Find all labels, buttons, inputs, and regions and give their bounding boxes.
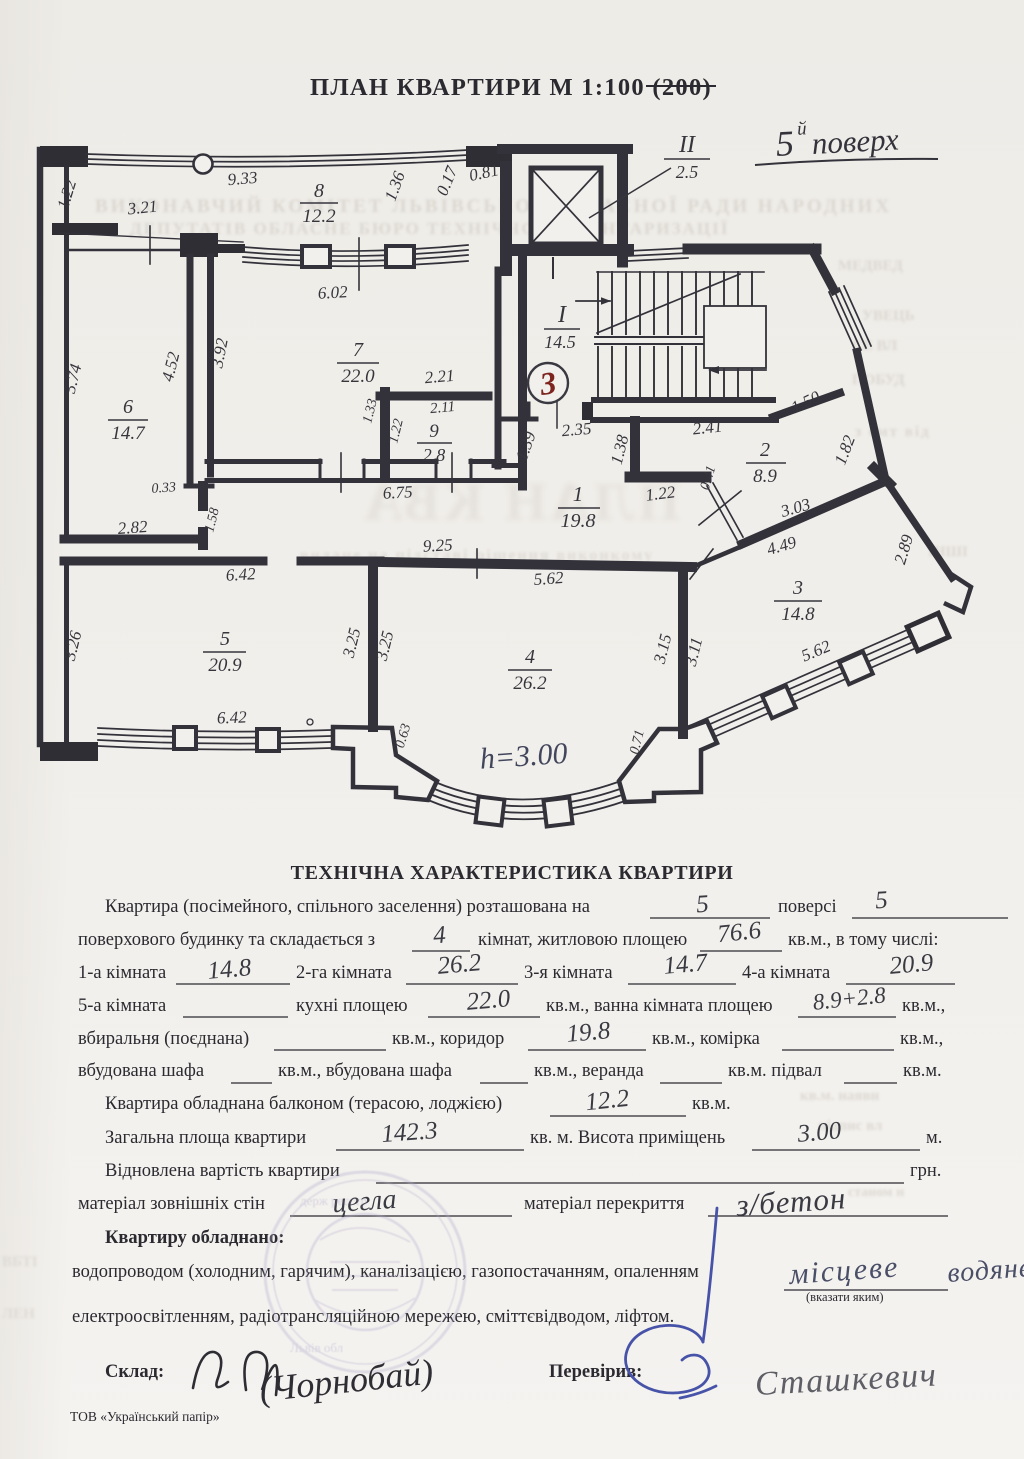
- svg-text:142.3: 142.3: [380, 1117, 438, 1148]
- svg-text:76.6: 76.6: [716, 917, 763, 948]
- svg-text:2-га кімната: 2-га кімната: [296, 963, 392, 983]
- svg-text:26.2: 26.2: [513, 673, 547, 694]
- svg-text:h=3.00: h=3.00: [479, 737, 569, 776]
- svg-text:поверсі: поверсі: [778, 897, 837, 917]
- svg-text:м.: м.: [926, 1128, 942, 1148]
- svg-text:кв.м., коридор: кв.м., коридор: [392, 1029, 504, 1049]
- svg-text:кв.м.,: кв.м.,: [902, 996, 945, 1016]
- svg-text:кв.м., вбудована шафа: кв.м., вбудована шафа: [278, 1061, 452, 1081]
- svg-text:8: 8: [314, 180, 324, 202]
- svg-text:Квартира (посімейного, спільно: Квартира (посімейного, спільного заселен…: [105, 897, 590, 917]
- svg-text:водяне: водяне: [946, 1252, 1024, 1289]
- svg-text:кв.м., комірка: кв.м., комірка: [652, 1029, 760, 1049]
- svg-text:22.0: 22.0: [341, 366, 375, 387]
- svg-text:ВБТІ: ВБТІ: [2, 1254, 38, 1270]
- svg-text:5-а кімната: 5-а кімната: [78, 996, 166, 1016]
- svg-text:6.02: 6.02: [317, 282, 348, 303]
- svg-text:8.9: 8.9: [753, 466, 777, 487]
- svg-text:2.35: 2.35: [561, 419, 592, 441]
- svg-text:22.0: 22.0: [465, 985, 511, 1016]
- svg-text:12.2: 12.2: [584, 1085, 630, 1116]
- svg-text:3.00: 3.00: [795, 1117, 842, 1148]
- svg-text:3-я кімната: 3-я кімната: [524, 963, 613, 983]
- svg-text:ВИКОНАВЧИЙ КОМІТЕТ ЛЬВІВСЬКОЇ: ВИКОНАВЧИЙ КОМІТЕТ ЛЬВІВСЬКОЇ ОБЛАСНОЇ Р…: [95, 195, 892, 217]
- svg-text:2.82: 2.82: [117, 517, 149, 538]
- svg-text:МЕДВЕД: МЕДВЕД: [838, 258, 903, 274]
- svg-text:водопроводом (холодним, гарячи: водопроводом (холодним, гарячим), каналі…: [72, 1262, 699, 1282]
- svg-text:2.21: 2.21: [424, 366, 455, 388]
- svg-text:1-а кімната: 1-а кімната: [78, 963, 166, 983]
- svg-text:II: II: [678, 132, 696, 158]
- svg-text:2: 2: [760, 439, 770, 461]
- svg-text:кв.м., веранда: кв.м., веранда: [534, 1061, 644, 1081]
- svg-text:кв.м.,: кв.м.,: [900, 1029, 943, 1049]
- svg-text:ТЕХНІЧНА ХАРАКТЕРИСТИКА КВАР: ТЕХНІЧНА ХАРАКТЕРИСТИКА КВАРТИРИ: [291, 862, 734, 884]
- svg-text:6: 6: [123, 396, 133, 418]
- svg-text:3.21: 3.21: [126, 197, 159, 219]
- svg-text:Загальна площа квартири: Загальна площа квартири: [105, 1128, 306, 1148]
- svg-text:5: 5: [220, 628, 230, 650]
- svg-text:електроосвітленням, радіотранс: електроосвітленням, радіотрансляційною м…: [72, 1307, 674, 1327]
- svg-text:5: 5: [695, 891, 709, 919]
- svg-text:УВЕЦЬ: УВЕЦЬ: [862, 308, 915, 324]
- svg-text:грн.: грн.: [910, 1161, 941, 1181]
- svg-text:ДЕПУТАТІВ ОБЛАСНЕ БЮРО ТЕХНІЧН: ДЕПУТАТІВ ОБЛАСНЕ БЮРО ТЕХНІЧНОЇ ІНВЕНТА…: [130, 219, 729, 238]
- svg-text:кв.м.: кв.м.: [903, 1061, 942, 1081]
- svg-text:кв.м.: кв.м.: [692, 1094, 731, 1114]
- svg-text:2.8: 2.8: [423, 445, 446, 465]
- svg-text:кв.м., ванна кімната площею: кв.м., ванна кімната площею: [546, 996, 773, 1016]
- svg-text:й: й: [797, 118, 808, 139]
- svg-text:I: I: [557, 302, 567, 328]
- svg-text:Склад:: Склад:: [105, 1362, 164, 1382]
- svg-text:вбиральня (поєднана): вбиральня (поєднана): [78, 1029, 249, 1049]
- svg-text:5: 5: [775, 123, 795, 164]
- svg-text:20.9: 20.9: [208, 655, 242, 676]
- svg-text:14.7: 14.7: [111, 423, 146, 444]
- svg-text:станом н: станом н: [848, 1185, 904, 1200]
- svg-text:14.8: 14.8: [206, 954, 252, 985]
- svg-text:6.42: 6.42: [217, 707, 248, 727]
- svg-text:0.33: 0.33: [151, 480, 176, 497]
- svg-text:4: 4: [525, 646, 535, 668]
- svg-text:з смт від: з смт від: [855, 424, 931, 440]
- svg-text:кв. м. Висота приміщень: кв. м. Висота приміщень: [530, 1128, 725, 1148]
- svg-text:5.62: 5.62: [533, 568, 565, 589]
- svg-text:9.33: 9.33: [227, 168, 258, 190]
- svg-text:(вказати яким): (вказати яким): [806, 1290, 884, 1304]
- svg-text:2.41: 2.41: [692, 417, 724, 439]
- svg-text:7: 7: [353, 339, 364, 361]
- svg-text:кімнат, житловою площею: кімнат, житловою площею: [478, 930, 687, 950]
- svg-text:2.11: 2.11: [429, 399, 455, 417]
- svg-text:14.7: 14.7: [662, 949, 709, 980]
- svg-text:2.5: 2.5: [676, 162, 699, 182]
- svg-text:ТОВ «Український папір»: ТОВ «Український папір»: [70, 1409, 220, 1424]
- svg-text:матеріал перекриття: матеріал перекриття: [524, 1194, 685, 1214]
- svg-text:1: 1: [573, 482, 584, 506]
- svg-text:Квартира обладнана балконом (т: Квартира обладнана балконом (терасою, ло…: [105, 1094, 502, 1114]
- svg-text:кв.м. наявн: кв.м. наявн: [800, 1088, 880, 1104]
- svg-text:Квартиру обладнано:: Квартиру обладнано:: [105, 1228, 284, 1248]
- svg-text:Відновлена вартість квартири: Відновлена вартість квартири: [105, 1161, 340, 1181]
- svg-text:кв.м. підвал: кв.м. підвал: [728, 1061, 822, 1081]
- svg-text:Львів обл: Львів обл: [290, 1340, 344, 1355]
- svg-text:14.5: 14.5: [544, 332, 576, 352]
- svg-text:1.22: 1.22: [644, 482, 676, 505]
- svg-text:6.75: 6.75: [382, 482, 413, 503]
- svg-text:поверх: поверх: [811, 121, 900, 161]
- svg-text:3: 3: [792, 577, 803, 599]
- svg-text:кв.м., в тому числі:: кв.м., в тому числі:: [788, 930, 939, 950]
- svg-text:поверхового будинку та складає: поверхового будинку та складається з: [78, 930, 375, 950]
- svg-text:19.8: 19.8: [561, 510, 596, 532]
- svg-text:9: 9: [429, 421, 439, 442]
- svg-text:5: 5: [874, 887, 888, 915]
- svg-text:матеріал зовнішніх стін: матеріал зовнішніх стін: [78, 1194, 265, 1214]
- svg-text:20.9: 20.9: [888, 949, 934, 980]
- svg-text:держ реєстр: держ реєстр: [300, 1193, 367, 1208]
- svg-text:4-а кімната: 4-а кімната: [742, 963, 830, 983]
- svg-text:4: 4: [432, 922, 446, 950]
- svg-text:26.2: 26.2: [436, 949, 482, 980]
- svg-text:6.42: 6.42: [225, 564, 256, 585]
- svg-text:кухні площею: кухні площею: [296, 996, 408, 1016]
- svg-text:9.25: 9.25: [422, 535, 453, 556]
- svg-text:14.8: 14.8: [781, 604, 815, 625]
- svg-text:19.8: 19.8: [565, 1017, 611, 1048]
- svg-text:ЛЕН: ЛЕН: [2, 1306, 35, 1322]
- svg-text:вбудована шафа: вбудована шафа: [78, 1061, 204, 1081]
- svg-text:ПЛАН КВАРТИРИ М 1:100 (200): ПЛАН КВАРТИРИ М 1:100 (200): [310, 74, 712, 101]
- svg-text:12.2: 12.2: [302, 206, 336, 227]
